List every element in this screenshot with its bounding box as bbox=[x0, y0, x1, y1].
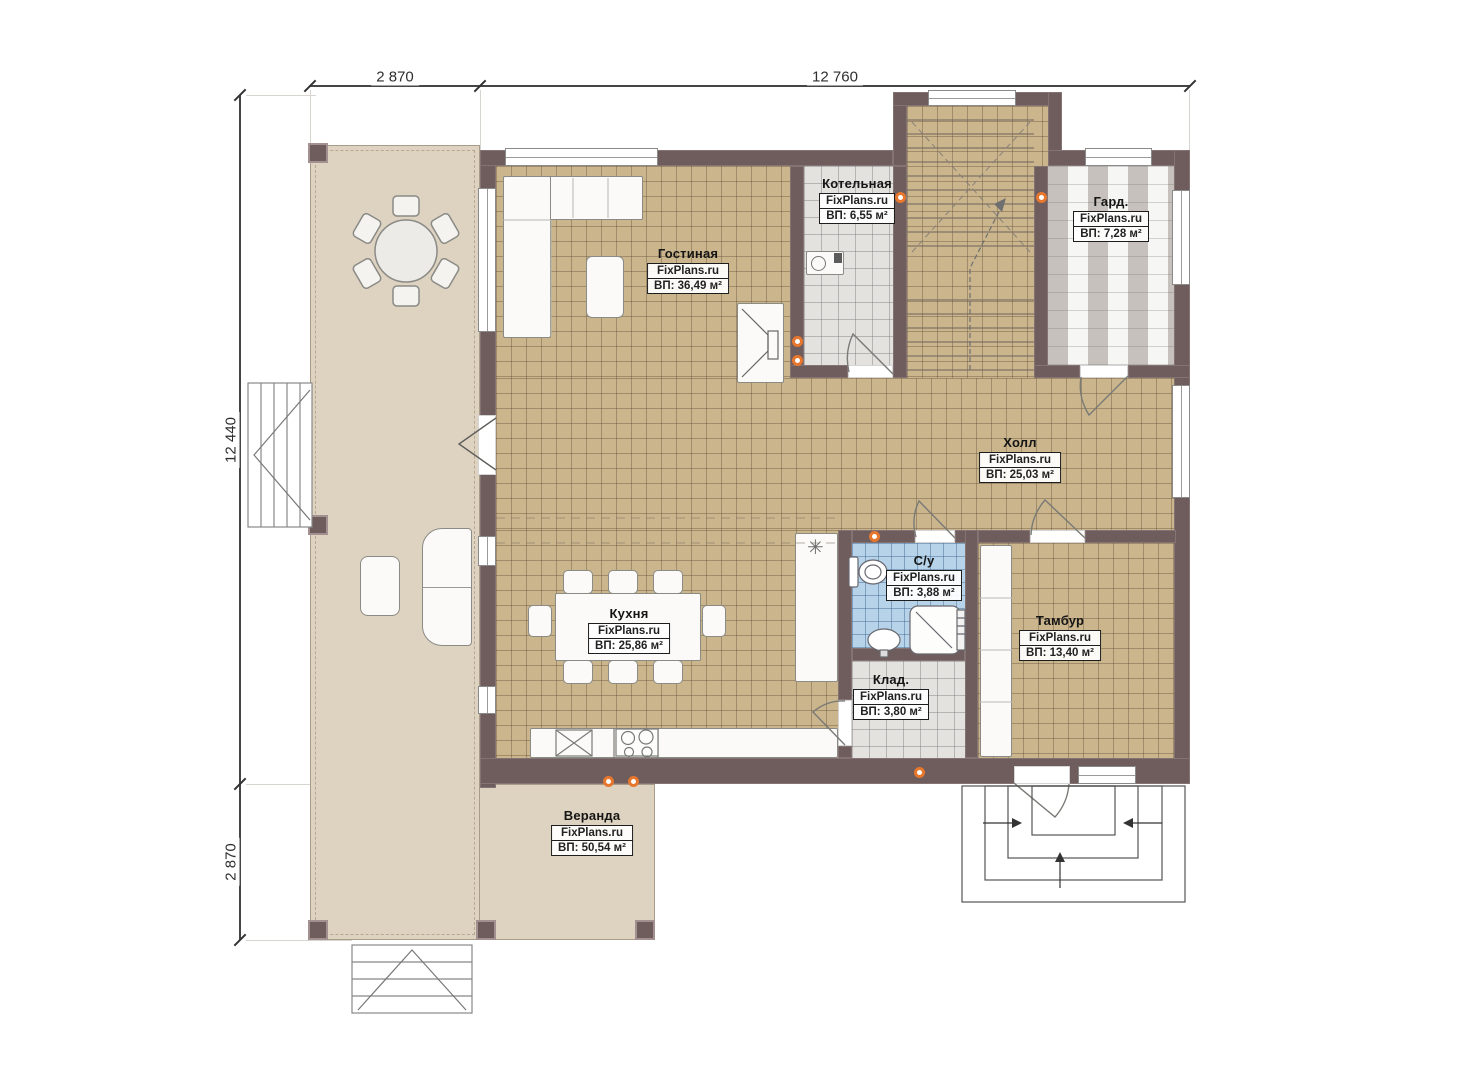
room-label-bathroom: С/у FixPlans.ru ВП: 3,88 м² bbox=[886, 553, 962, 601]
window bbox=[505, 148, 658, 166]
exterior-steps-south bbox=[352, 945, 472, 1013]
room-name: С/у bbox=[886, 553, 962, 568]
dimension-line-top bbox=[310, 85, 1190, 87]
window bbox=[478, 536, 496, 566]
corner-sofa-side bbox=[503, 176, 551, 338]
veranda-post bbox=[308, 515, 328, 535]
door-opening-wardrobe bbox=[1080, 365, 1128, 378]
room-label-boiler: Котельная FixPlans.ru ВП: 6,55 м² bbox=[819, 176, 895, 224]
chair bbox=[608, 660, 638, 684]
room-name: Гостиная bbox=[647, 246, 729, 261]
room-label-veranda: Веранда FixPlans.ru ВП: 50,54 м² bbox=[551, 808, 633, 856]
extension-line bbox=[246, 95, 316, 96]
chair bbox=[653, 570, 683, 594]
brand-tag: FixPlans.ru bbox=[647, 263, 729, 279]
brand-tag: FixPlans.ru bbox=[1019, 630, 1101, 646]
window bbox=[1085, 148, 1152, 166]
room-name: Холл bbox=[979, 435, 1061, 450]
window bbox=[928, 90, 1016, 106]
room-label-wardrobe: Гард. FixPlans.ru ВП: 7,28 м² bbox=[1073, 194, 1149, 242]
room-name: Кухня bbox=[588, 606, 670, 621]
veranda-post bbox=[476, 920, 496, 940]
room-name: Котельная bbox=[819, 176, 895, 191]
area-tag: ВП: 13,40 м² bbox=[1019, 645, 1101, 661]
door-opening-veranda bbox=[478, 415, 496, 475]
boiler-panel bbox=[834, 253, 842, 263]
dimension-label-left-veranda: 2 870 bbox=[223, 838, 240, 886]
wall-segment bbox=[965, 530, 978, 758]
room-name: Веранда bbox=[551, 808, 633, 823]
veranda-post bbox=[308, 143, 328, 163]
dimension-label-top-house: 12 760 bbox=[807, 69, 863, 86]
fireplace bbox=[737, 303, 784, 383]
dimension-label-top-veranda: 2 870 bbox=[371, 69, 419, 86]
wall-segment bbox=[852, 530, 915, 543]
dimension-label-left-house: 12 440 bbox=[223, 412, 240, 468]
side-table bbox=[360, 556, 400, 616]
door-opening-vestibule bbox=[1030, 530, 1085, 543]
kitchen-counter bbox=[530, 728, 838, 758]
room-label-kitchen: Кухня FixPlans.ru ВП: 25,86 м² bbox=[588, 606, 670, 654]
door-opening-entry bbox=[1014, 766, 1070, 784]
window bbox=[478, 686, 496, 714]
veranda-sofa bbox=[422, 528, 472, 646]
sofa-seam bbox=[423, 587, 471, 588]
socket-marker bbox=[628, 776, 639, 787]
area-tag: ВП: 25,03 м² bbox=[979, 467, 1061, 483]
chair bbox=[528, 605, 552, 637]
extension-line bbox=[1189, 90, 1190, 150]
room-name: Тамбур bbox=[1019, 613, 1101, 628]
window bbox=[478, 188, 496, 332]
window bbox=[1172, 190, 1190, 285]
window bbox=[1078, 766, 1136, 784]
dimension-line-left bbox=[239, 95, 241, 940]
brand-tag: FixPlans.ru bbox=[1073, 211, 1149, 227]
wall-segment bbox=[1034, 365, 1080, 378]
brand-tag: FixPlans.ru bbox=[819, 193, 895, 209]
room-name: Клад. bbox=[853, 672, 929, 687]
chair bbox=[563, 660, 593, 684]
chair bbox=[608, 570, 638, 594]
entry-porch-steps bbox=[962, 786, 1185, 902]
area-tag: ВП: 36,49 м² bbox=[647, 278, 729, 294]
area-tag: ВП: 7,28 м² bbox=[1073, 226, 1149, 242]
area-tag: ВП: 25,86 м² bbox=[588, 638, 670, 654]
socket-marker bbox=[1036, 192, 1047, 203]
door-opening-bathroom bbox=[915, 530, 955, 543]
wall-segment bbox=[1128, 365, 1190, 378]
room-floor-stairs bbox=[907, 106, 1048, 378]
socket-marker bbox=[914, 767, 925, 778]
room-label-living: Гостиная FixPlans.ru ВП: 36,49 м² bbox=[647, 246, 729, 294]
drain-icon: ✳ bbox=[807, 538, 824, 558]
wall-segment bbox=[1085, 530, 1176, 543]
wall-segment bbox=[852, 648, 965, 661]
brand-tag: FixPlans.ru bbox=[979, 452, 1061, 468]
extension-line bbox=[480, 90, 481, 150]
room-name: Гард. bbox=[1073, 194, 1149, 209]
room-label-hall: Холл FixPlans.ru ВП: 25,03 м² bbox=[979, 435, 1061, 483]
boiler-unit bbox=[806, 251, 844, 275]
boiler-dial-icon bbox=[811, 256, 826, 271]
extension-line bbox=[246, 940, 352, 941]
socket-marker bbox=[869, 531, 880, 542]
door-opening-boiler bbox=[848, 365, 893, 378]
brand-tag: FixPlans.ru bbox=[551, 825, 633, 841]
area-tag: ВП: 50,54 м² bbox=[551, 840, 633, 856]
socket-marker bbox=[792, 355, 803, 366]
room-floor-hall bbox=[496, 378, 1174, 530]
chair bbox=[702, 605, 726, 637]
window bbox=[1172, 385, 1190, 498]
socket-marker bbox=[895, 192, 906, 203]
brand-tag: FixPlans.ru bbox=[886, 570, 962, 586]
wall-segment bbox=[838, 530, 852, 700]
chair bbox=[653, 660, 683, 684]
extension-line bbox=[310, 90, 311, 146]
room-label-vestibule: Тамбур FixPlans.ru ВП: 13,40 м² bbox=[1019, 613, 1101, 661]
wall-segment bbox=[978, 530, 1030, 543]
wall-segment bbox=[790, 365, 848, 378]
area-tag: ВП: 3,80 м² bbox=[853, 704, 929, 720]
brand-tag: FixPlans.ru bbox=[588, 623, 670, 639]
brand-tag: FixPlans.ru bbox=[853, 689, 929, 705]
floor-plan-canvas: 2 870 12 760 12 440 2 870 bbox=[0, 0, 1473, 1080]
door-opening-storage bbox=[838, 700, 852, 746]
closet bbox=[980, 545, 1012, 757]
veranda-post bbox=[635, 920, 655, 940]
coffee-table bbox=[586, 256, 624, 318]
socket-marker bbox=[603, 776, 614, 787]
wall-segment bbox=[838, 746, 852, 758]
veranda-post bbox=[308, 920, 328, 940]
socket-marker bbox=[792, 336, 803, 347]
area-tag: ВП: 3,88 м² bbox=[886, 585, 962, 601]
chair bbox=[563, 570, 593, 594]
room-label-storage: Клад. FixPlans.ru ВП: 3,80 м² bbox=[853, 672, 929, 720]
area-tag: ВП: 6,55 м² bbox=[819, 208, 895, 224]
exterior-steps-west bbox=[248, 383, 312, 527]
